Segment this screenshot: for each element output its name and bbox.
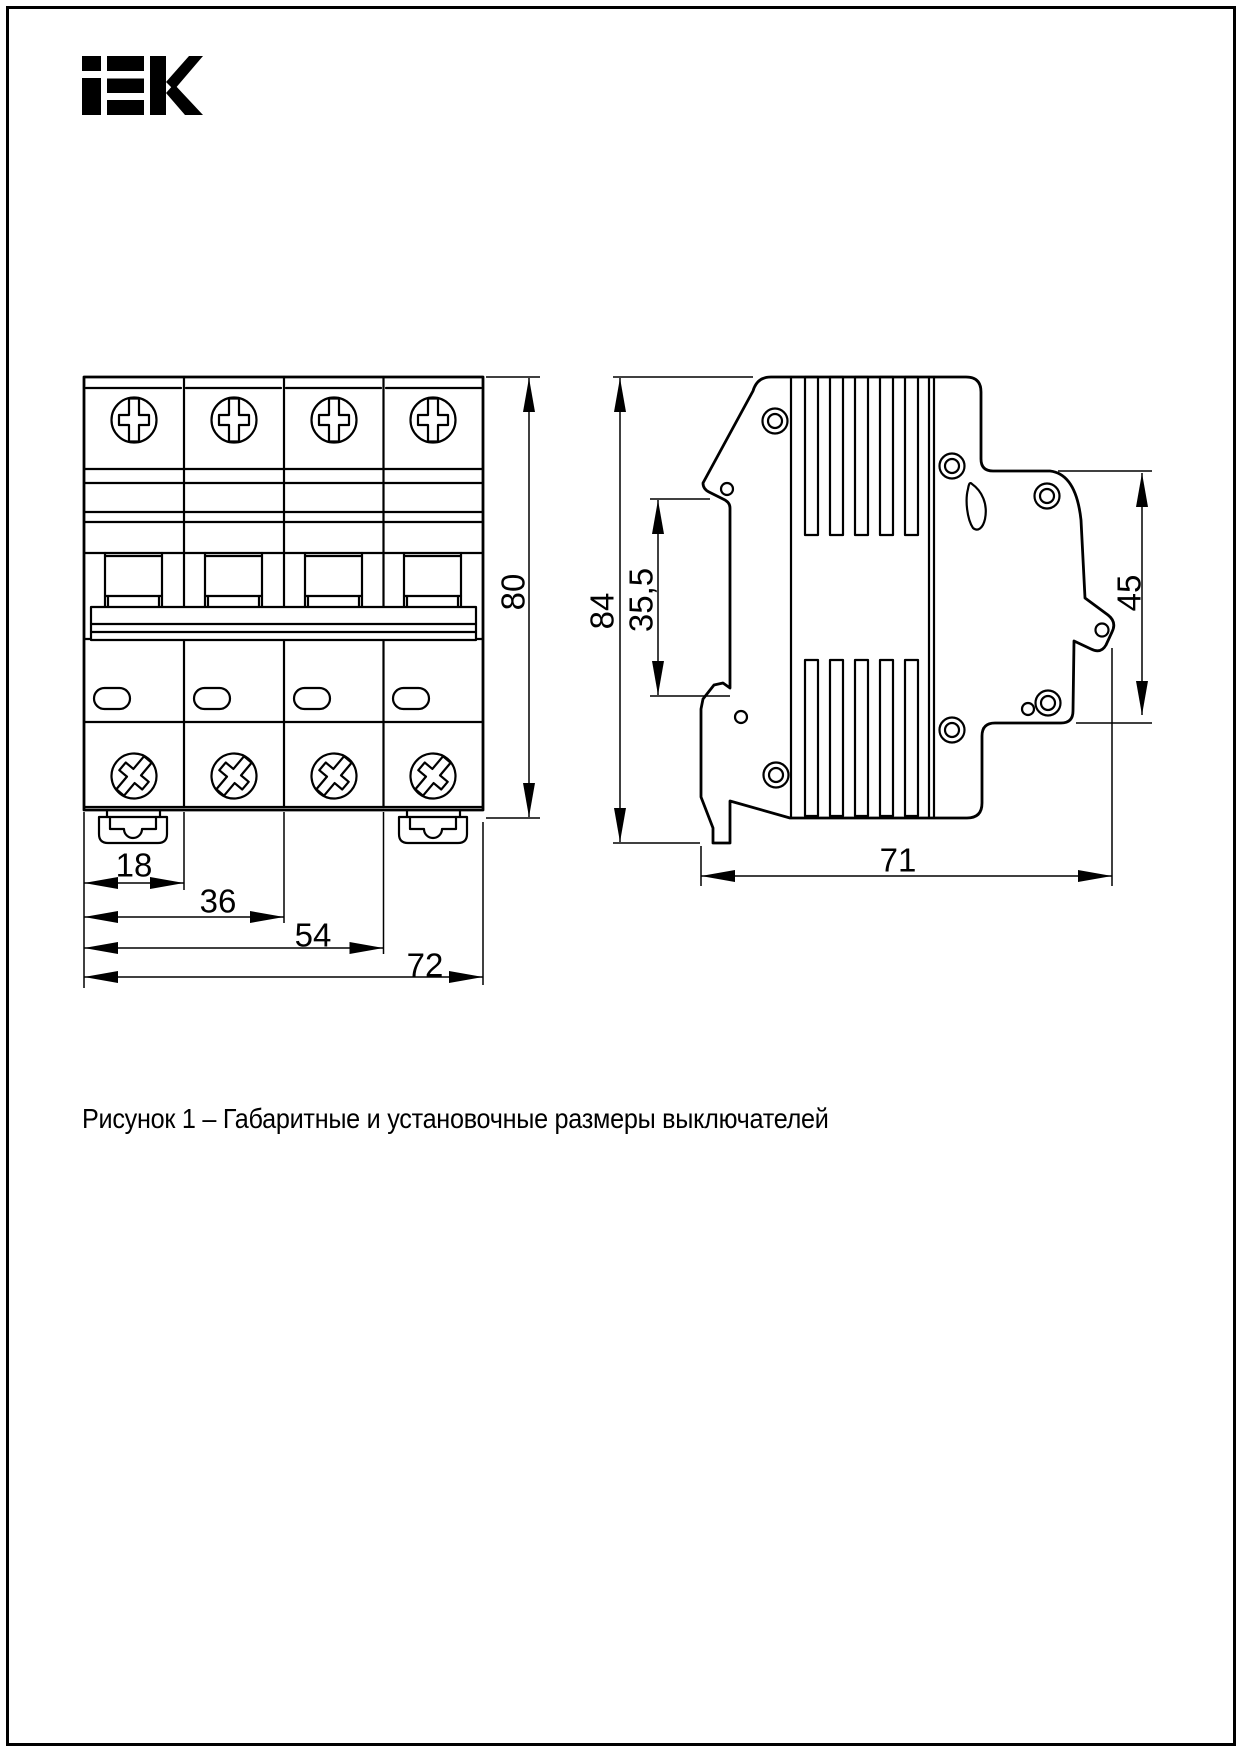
dim-label-35-5: 35,5 xyxy=(623,568,660,632)
side-view-drawing xyxy=(701,377,1114,843)
dim-label-71: 71 xyxy=(880,842,917,879)
dim-label-54: 54 xyxy=(295,917,332,954)
terminal-screw-icon xyxy=(401,744,464,807)
pin-hole-icon xyxy=(721,483,1109,723)
terminal-screw-icon xyxy=(302,744,365,807)
label-windows xyxy=(94,688,429,709)
rivet-icon xyxy=(763,409,1061,788)
datasheet-page: 18 36 54 72 80 84 35,5 45 71 Рисунок 1 –… xyxy=(0,0,1240,1750)
din-clip xyxy=(99,810,167,843)
terminal-screw-icon xyxy=(112,398,157,443)
dim-label-36: 36 xyxy=(200,883,237,920)
din-clip xyxy=(399,810,467,843)
terminal-screw-icon xyxy=(312,398,357,443)
dim-label-18: 18 xyxy=(116,847,153,884)
side-inner-lines xyxy=(791,377,934,818)
pole-dividers xyxy=(184,377,384,807)
dim-label-84: 84 xyxy=(584,593,621,630)
terminal-screw-icon xyxy=(411,398,456,443)
iek-logo-icon xyxy=(82,56,203,115)
curved-slot xyxy=(967,483,986,529)
figure-caption: Рисунок 1 – Габаритные и установочные ра… xyxy=(82,1103,912,1135)
front-view-drawing xyxy=(84,377,483,843)
ventilation-fins-upper xyxy=(805,377,918,535)
dim-label-72: 72 xyxy=(407,947,444,984)
terminal-screw-icon xyxy=(212,398,257,443)
figure-caption-text: Рисунок 1 – Габаритные и установочные ра… xyxy=(82,1103,829,1135)
dim-label-80: 80 xyxy=(495,574,532,611)
ventilation-fins-lower xyxy=(805,660,918,816)
terminal-screw-icon xyxy=(102,744,165,807)
technical-drawing: 18 36 54 72 80 84 35,5 45 71 xyxy=(0,0,1240,1750)
handle-tie-bar xyxy=(91,607,476,640)
terminal-screw-icon xyxy=(202,744,265,807)
dim-label-45: 45 xyxy=(1111,575,1148,612)
